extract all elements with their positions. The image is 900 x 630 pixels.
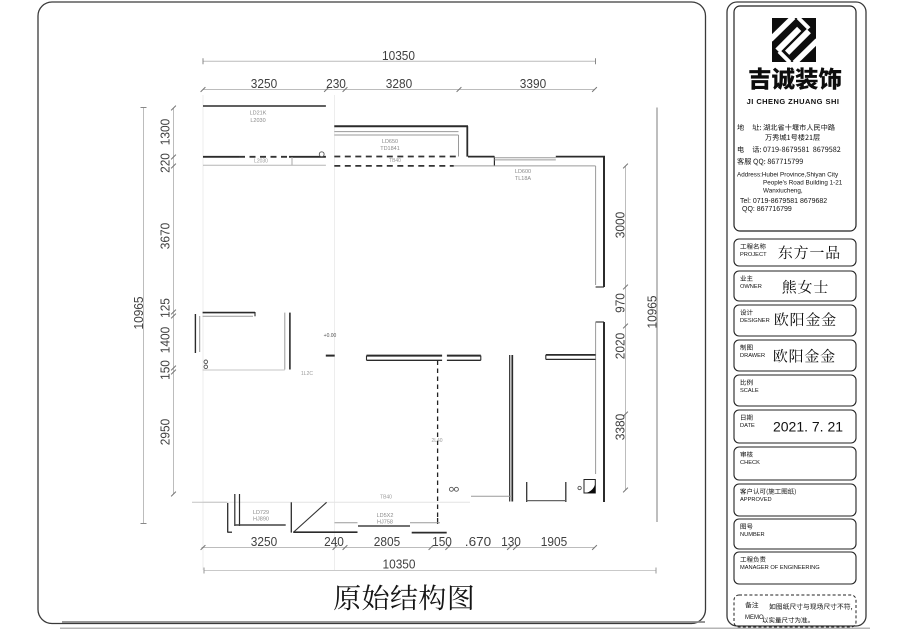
svg-text:TD1841: TD1841 bbox=[380, 146, 400, 152]
svg-text:3250: 3250 bbox=[251, 534, 277, 549]
svg-text:L2030: L2030 bbox=[250, 118, 265, 124]
svg-text:MANAGER OF ENGINEERING: MANAGER OF ENGINEERING bbox=[740, 565, 820, 571]
svg-text:1300: 1300 bbox=[158, 119, 173, 145]
svg-text:2L40: 2L40 bbox=[431, 438, 442, 444]
svg-text:3250: 3250 bbox=[251, 76, 277, 91]
svg-text:APPROVED: APPROVED bbox=[740, 497, 772, 503]
svg-text:HJ758: HJ758 bbox=[377, 520, 393, 526]
svg-text:1400: 1400 bbox=[158, 327, 173, 353]
svg-text:DESIGNER: DESIGNER bbox=[740, 318, 770, 324]
svg-text:2805: 2805 bbox=[374, 534, 400, 549]
svg-text:MEMO: MEMO bbox=[745, 615, 764, 621]
svg-text:3380: 3380 bbox=[613, 414, 628, 440]
svg-text:1905: 1905 bbox=[541, 534, 567, 549]
svg-text:L2030: L2030 bbox=[254, 159, 268, 165]
svg-text:LD650: LD650 bbox=[382, 139, 398, 145]
svg-text:10965: 10965 bbox=[645, 296, 660, 329]
svg-text:970: 970 bbox=[613, 293, 628, 313]
svg-text:CHECK: CHECK bbox=[740, 460, 760, 466]
svg-text:LD600: LD600 bbox=[515, 169, 531, 175]
svg-text:People's Road Building 1-21: People's Road Building 1-21 bbox=[763, 180, 843, 187]
svg-text:LD729: LD729 bbox=[253, 510, 269, 516]
svg-text:JI CHENG ZHUANG SHI: JI CHENG ZHUANG SHI bbox=[747, 97, 840, 106]
svg-text:QQ: 867716799: QQ: 867716799 bbox=[742, 206, 792, 213]
svg-text:HJ890: HJ890 bbox=[253, 517, 269, 523]
svg-text:1L2C: 1L2C bbox=[301, 371, 313, 377]
svg-text:Tel: 0719-8679581 8679682: Tel: 0719-8679581 8679682 bbox=[740, 198, 827, 205]
svg-text:10965: 10965 bbox=[131, 297, 146, 330]
svg-text:TL18A: TL18A bbox=[515, 176, 532, 182]
svg-text:3390: 3390 bbox=[520, 76, 546, 91]
svg-text:Address:Hubei Province,Shiyan: Address:Hubei Province,Shiyan City bbox=[737, 172, 839, 179]
svg-text:LD21K: LD21K bbox=[250, 111, 267, 117]
svg-text:220: 220 bbox=[158, 153, 173, 173]
svg-text:OWNER: OWNER bbox=[740, 284, 762, 290]
svg-text:3280: 3280 bbox=[386, 76, 412, 91]
svg-text:3670: 3670 bbox=[158, 223, 173, 249]
svg-text:TB40: TB40 bbox=[380, 495, 392, 501]
svg-text:DATE: DATE bbox=[740, 423, 755, 429]
svg-text:NUMBER: NUMBER bbox=[740, 532, 765, 538]
svg-text:Wanxiucheng,: Wanxiucheng, bbox=[763, 188, 803, 195]
svg-text:+0.00: +0.00 bbox=[324, 333, 337, 339]
svg-text:SCALE: SCALE bbox=[740, 388, 759, 394]
svg-text:125: 125 bbox=[158, 298, 173, 318]
svg-text:LD5X2: LD5X2 bbox=[377, 513, 394, 519]
svg-text:TB40: TB40 bbox=[389, 158, 401, 164]
svg-text:230: 230 bbox=[326, 76, 346, 91]
svg-text:240: 240 bbox=[324, 534, 344, 549]
svg-text:PROJECT: PROJECT bbox=[740, 252, 767, 258]
svg-text:10350: 10350 bbox=[382, 48, 415, 63]
svg-text:DRAWER: DRAWER bbox=[740, 353, 765, 359]
svg-text:3000: 3000 bbox=[613, 212, 628, 238]
svg-text:2020: 2020 bbox=[613, 333, 628, 359]
svg-text:2950: 2950 bbox=[158, 419, 173, 445]
svg-text:150: 150 bbox=[158, 360, 173, 380]
svg-text:2021. 7. 21: 2021. 7. 21 bbox=[773, 419, 843, 435]
svg-text:150: 150 bbox=[432, 534, 452, 549]
svg-text:.670: .670 bbox=[465, 534, 491, 549]
svg-text:130: 130 bbox=[501, 534, 521, 549]
svg-text:10350: 10350 bbox=[383, 557, 416, 572]
